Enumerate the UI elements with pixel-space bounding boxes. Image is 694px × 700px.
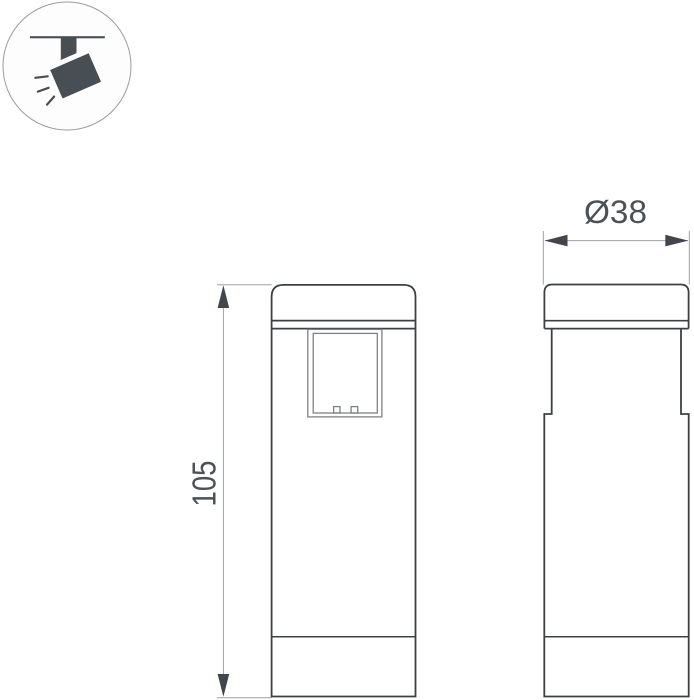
svg-text:Ø38: Ø38 bbox=[584, 194, 647, 230]
svg-text:105: 105 bbox=[186, 461, 223, 507]
